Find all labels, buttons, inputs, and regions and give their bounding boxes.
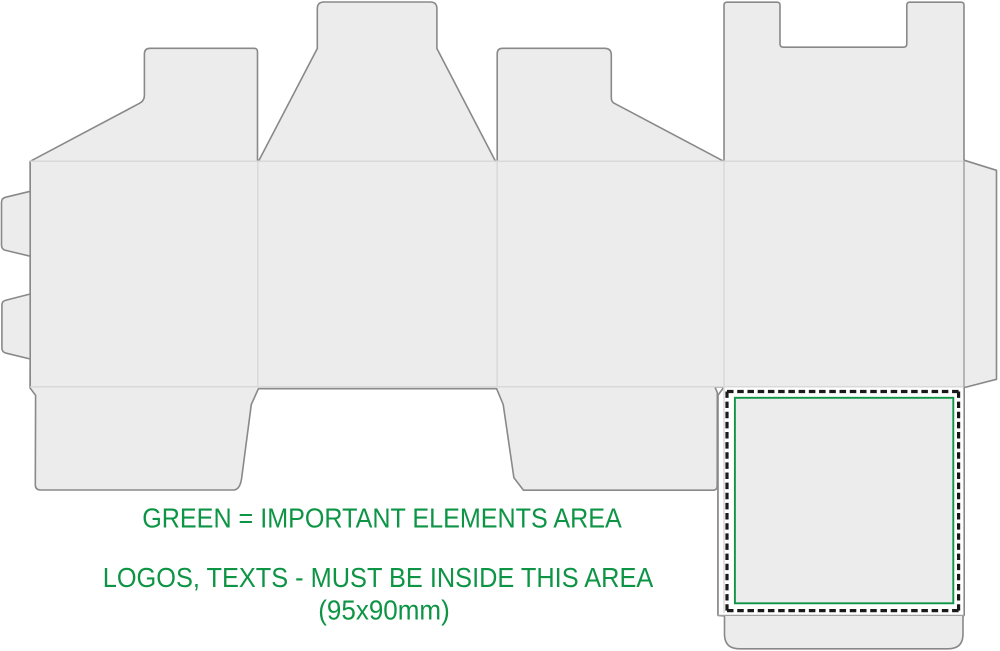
svg-text:GREEN = IMPORTANT ELEMENTS ARE: GREEN = IMPORTANT ELEMENTS AREA [142, 502, 622, 533]
svg-text:LOGOS, TEXTS - MUST BE INSIDE: LOGOS, TEXTS - MUST BE INSIDE THIS AREA [103, 562, 654, 593]
svg-text:(95x90mm): (95x90mm) [318, 595, 450, 626]
